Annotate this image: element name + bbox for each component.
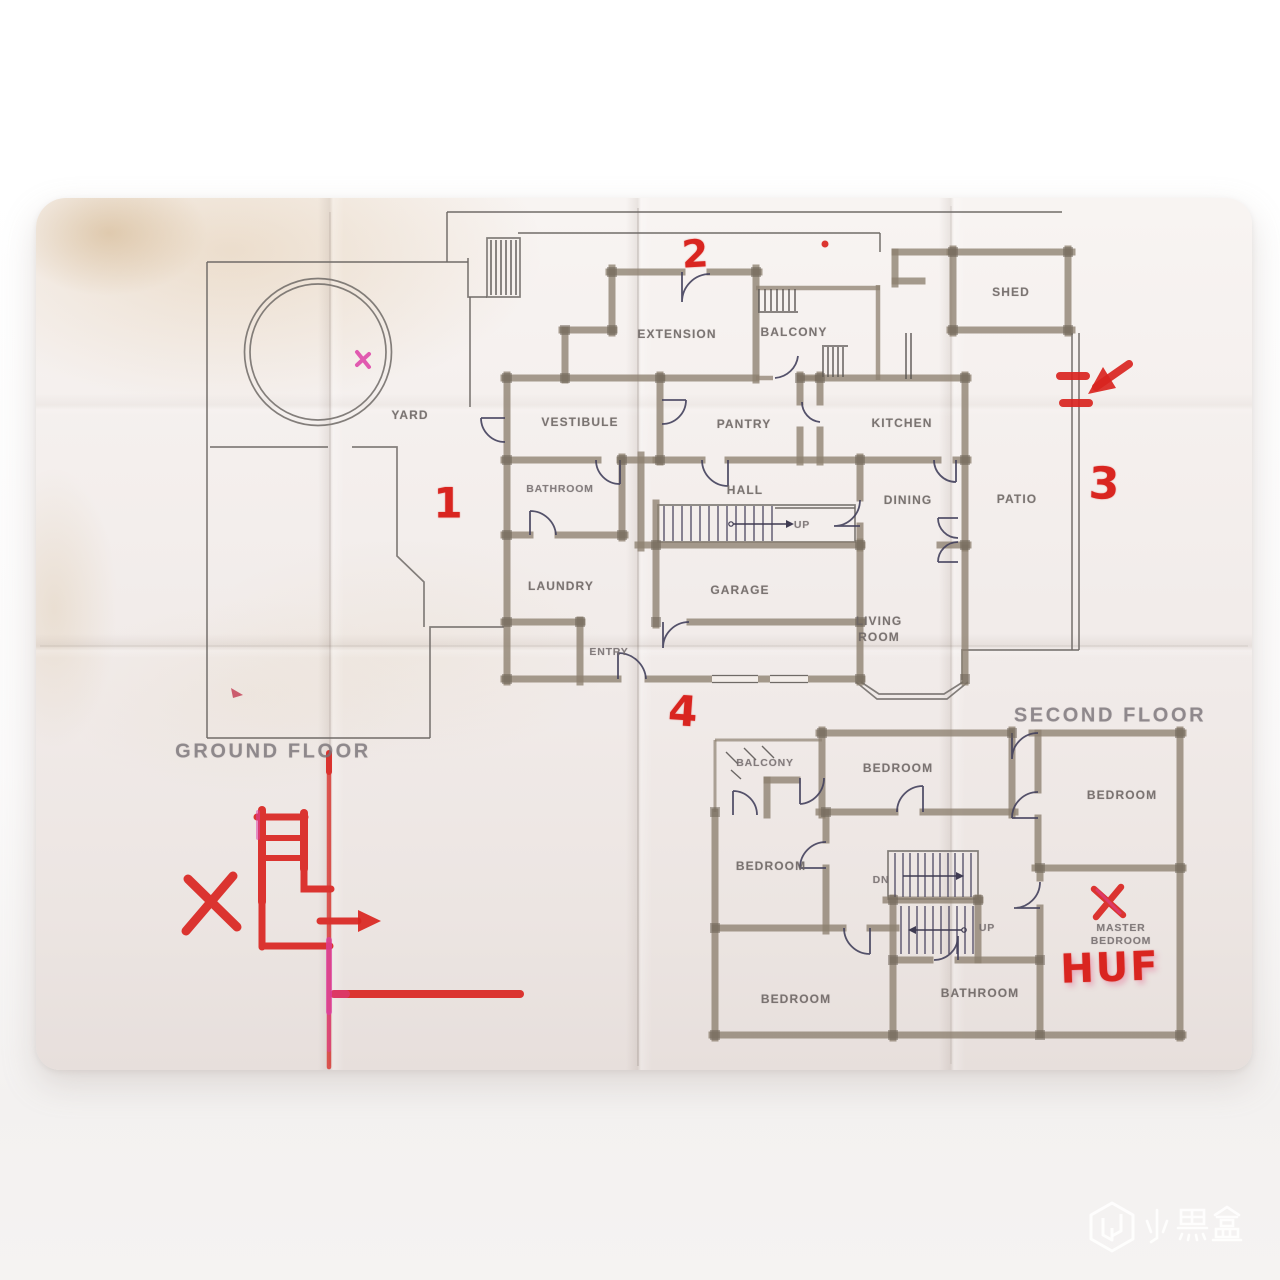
room-label-extension: EXTENSION (637, 327, 716, 341)
pink-pool-mark (357, 352, 369, 367)
hall-stairs-up (664, 506, 794, 541)
room-label-laundry: LAUNDRY (528, 579, 594, 593)
room-label-yard: YARD (391, 408, 428, 422)
stairs-label-dn: DN (873, 874, 890, 886)
xiaoheihe-logo-icon (1091, 1203, 1133, 1251)
marker-text-huf: HUF (1060, 943, 1161, 992)
room-label-living-line2: ROOM (858, 630, 900, 644)
room-label-master-line1: MASTER (1096, 922, 1145, 934)
x-mark-left (186, 876, 237, 931)
room-label-shed: SHED (992, 285, 1030, 299)
room-label-entry: ENTRY (589, 646, 628, 658)
room-label-pantry: PANTRY (717, 417, 772, 431)
stairs-label-up-second: UP (979, 922, 995, 934)
room-label-bathroom: BATHROOM (526, 483, 593, 495)
watermark-text: 小黑盒 (1138, 1205, 1248, 1245)
room-label-vestibule: VESTIBULE (541, 415, 618, 429)
red-dot (822, 241, 829, 248)
room-label-dining: DINING (884, 493, 933, 507)
pink-yard-mark (231, 688, 243, 698)
room-label-bedroom-right: BEDROOM (1087, 788, 1157, 802)
stairs-label-up-ground: UP (794, 519, 810, 531)
room-label-balcony: BALCONY (760, 325, 827, 339)
marker-number-3: 3 (1088, 458, 1120, 510)
second-floor-title: SECOND FLOOR (1014, 705, 1206, 728)
marker-number-2: 2 (681, 231, 710, 276)
room-label-living-line1: LIVING (856, 614, 903, 628)
room-label-balcony-2f: BALCONY (736, 757, 794, 769)
floorplan-drawing (0, 0, 1280, 1280)
photo-of-floorplan-paper: YARD EXTENSION BALCONY SHED VESTIBULE PA… (0, 0, 1280, 1280)
marker-number-1: 1 (433, 479, 462, 528)
ground-floor-title: GROUND FLOOR (175, 741, 371, 764)
room-label-hall: HALL (727, 483, 763, 497)
arrow-right-head (358, 910, 381, 932)
room-label-bedroom-bottom: BEDROOM (761, 992, 831, 1006)
room-label-kitchen: KITCHEN (871, 416, 932, 430)
room-label-patio: PATIO (997, 492, 1037, 506)
marker-number-4: 4 (667, 686, 700, 737)
ground-floor-walls (504, 249, 1072, 682)
room-label-bedroom-left: BEDROOM (736, 859, 806, 873)
room-label-garage: GARAGE (710, 583, 769, 597)
site-outline (207, 212, 1079, 899)
room-label-bedroom-top: BEDROOM (863, 761, 933, 775)
room-label-bathroom-2f: BATHROOM (941, 986, 1020, 1000)
